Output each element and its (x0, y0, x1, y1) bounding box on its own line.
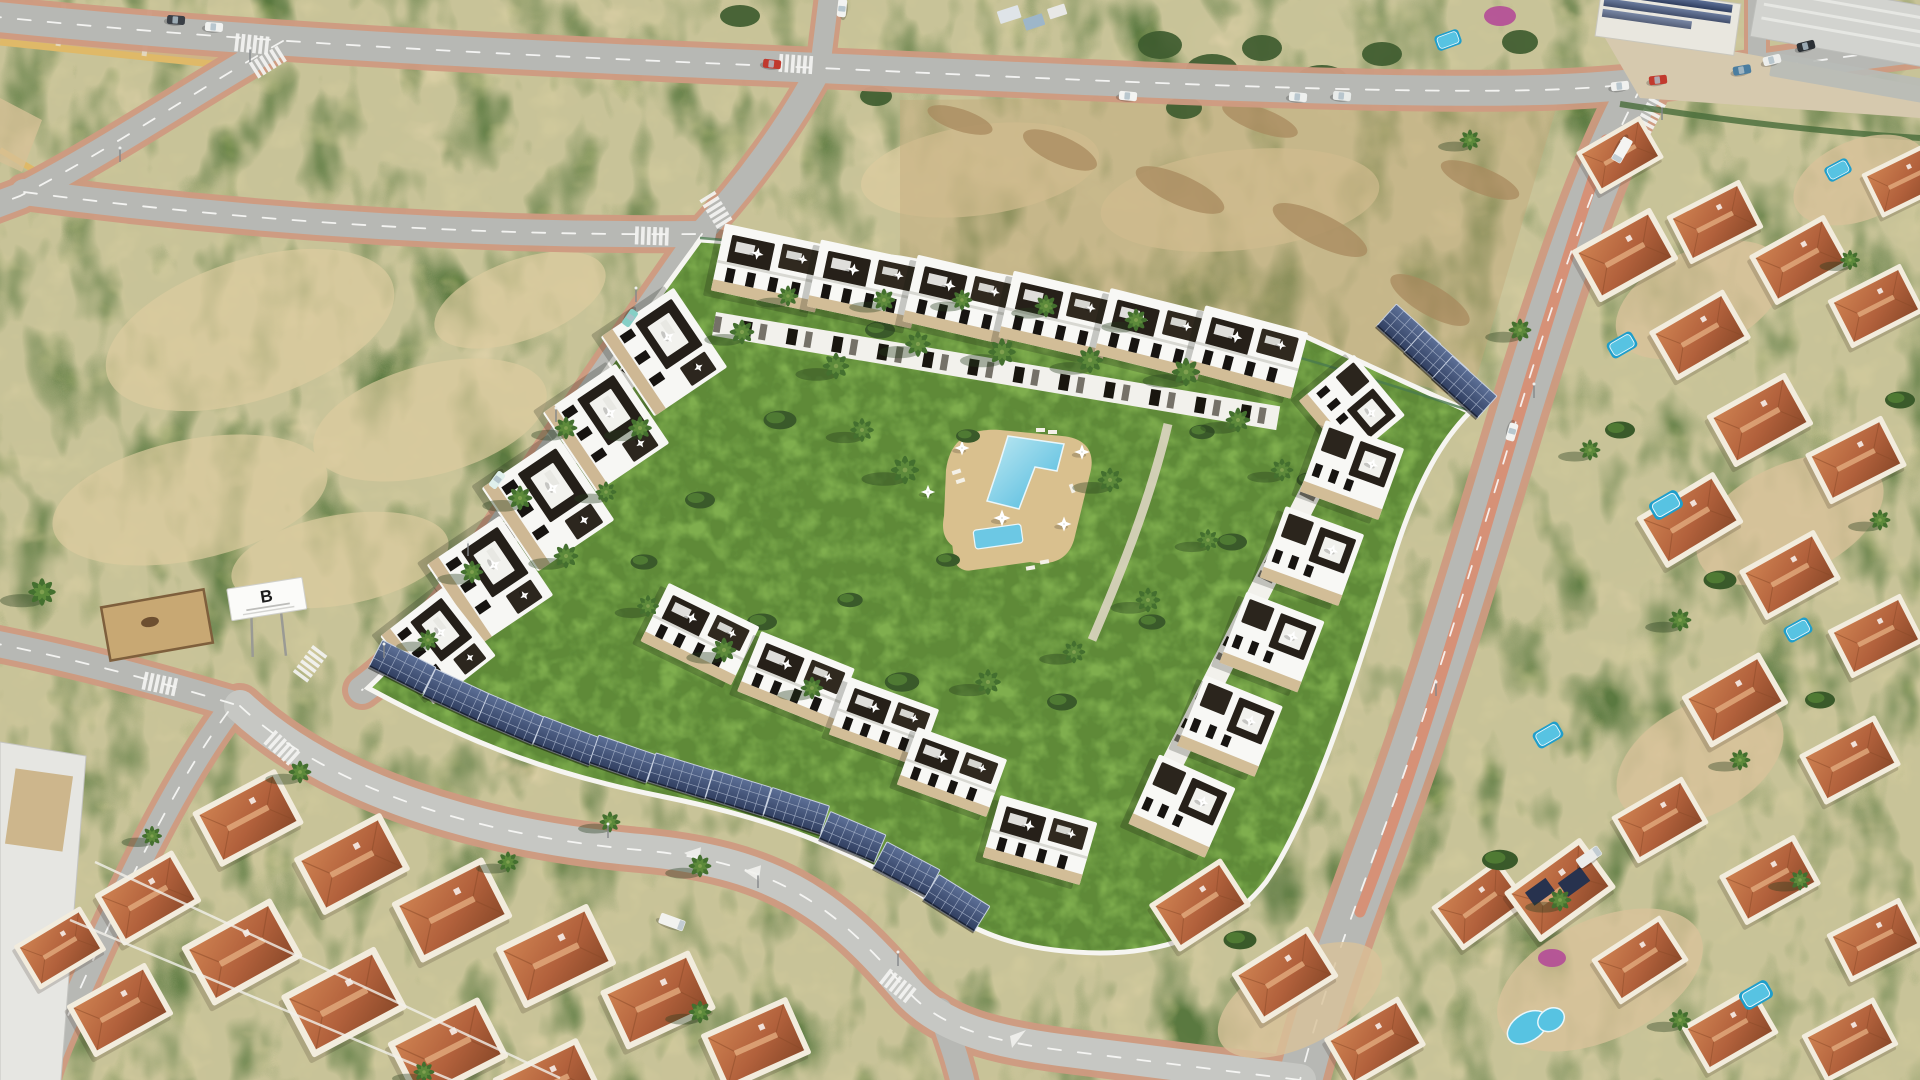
bougainvillea (1484, 6, 1516, 26)
aerial-scene: B (0, 0, 1920, 1080)
aerial-photo: B (0, 0, 1920, 1080)
bougainvillea (1538, 949, 1566, 967)
shrub (956, 429, 980, 443)
